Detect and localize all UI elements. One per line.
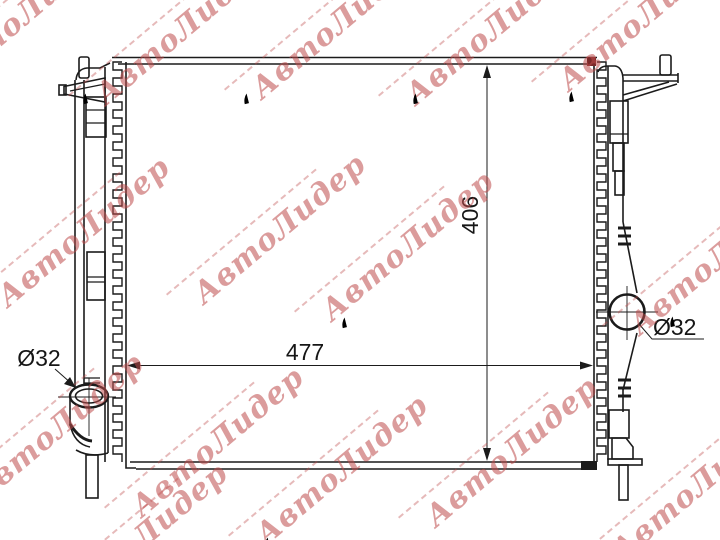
right-zigzag-edge bbox=[597, 62, 606, 462]
dimension-height: 406 bbox=[457, 65, 491, 461]
right-foot-plate bbox=[608, 459, 642, 465]
left-top-ladder bbox=[86, 97, 106, 137]
height-dimension-label: 406 bbox=[457, 196, 483, 234]
left-inlet-pipe bbox=[58, 378, 116, 498]
right-bottom-box bbox=[609, 410, 629, 438]
arrow-down bbox=[483, 448, 491, 461]
arrow-left bbox=[127, 362, 140, 370]
left-pipe-callout: Ø32 bbox=[17, 345, 76, 388]
right-top-peg bbox=[660, 55, 671, 75]
bottom-right-corner-notch bbox=[581, 461, 597, 470]
width-dimension-label: 477 bbox=[286, 339, 324, 365]
right-top-arm bbox=[623, 73, 678, 83]
right-top-ladder bbox=[610, 101, 628, 143]
left-pipe-diameter-label: Ø32 bbox=[17, 345, 60, 371]
arrow-up bbox=[483, 65, 491, 78]
right-tank bbox=[598, 55, 678, 500]
right-bottom-block bbox=[612, 438, 633, 459]
top-right-corner-notch bbox=[587, 57, 596, 66]
bottom-left-corner-step bbox=[126, 462, 136, 468]
outlet-boss-upper bbox=[623, 222, 637, 293]
radiator-line-drawing: 477 406 Ø32 Ø32 bbox=[0, 0, 720, 540]
dimension-width: 477 bbox=[127, 339, 593, 370]
radiator-core bbox=[112, 57, 606, 470]
right-gusset bbox=[623, 82, 677, 101]
radiator-technical-drawing: 477 406 Ø32 Ø32 АвтоЛидер АвтоЛидер Авто bbox=[0, 0, 720, 540]
left-zigzag-edge bbox=[113, 62, 122, 462]
arrow-right bbox=[580, 362, 593, 370]
right-bottom-tube bbox=[619, 465, 628, 500]
right-pipe-callout: Ø32 bbox=[639, 314, 704, 340]
right-pipe-diameter-label: Ø32 bbox=[653, 314, 696, 340]
left-mid-bracket bbox=[87, 252, 105, 300]
left-tank bbox=[59, 57, 110, 462]
left-bottom-tube bbox=[86, 455, 98, 498]
